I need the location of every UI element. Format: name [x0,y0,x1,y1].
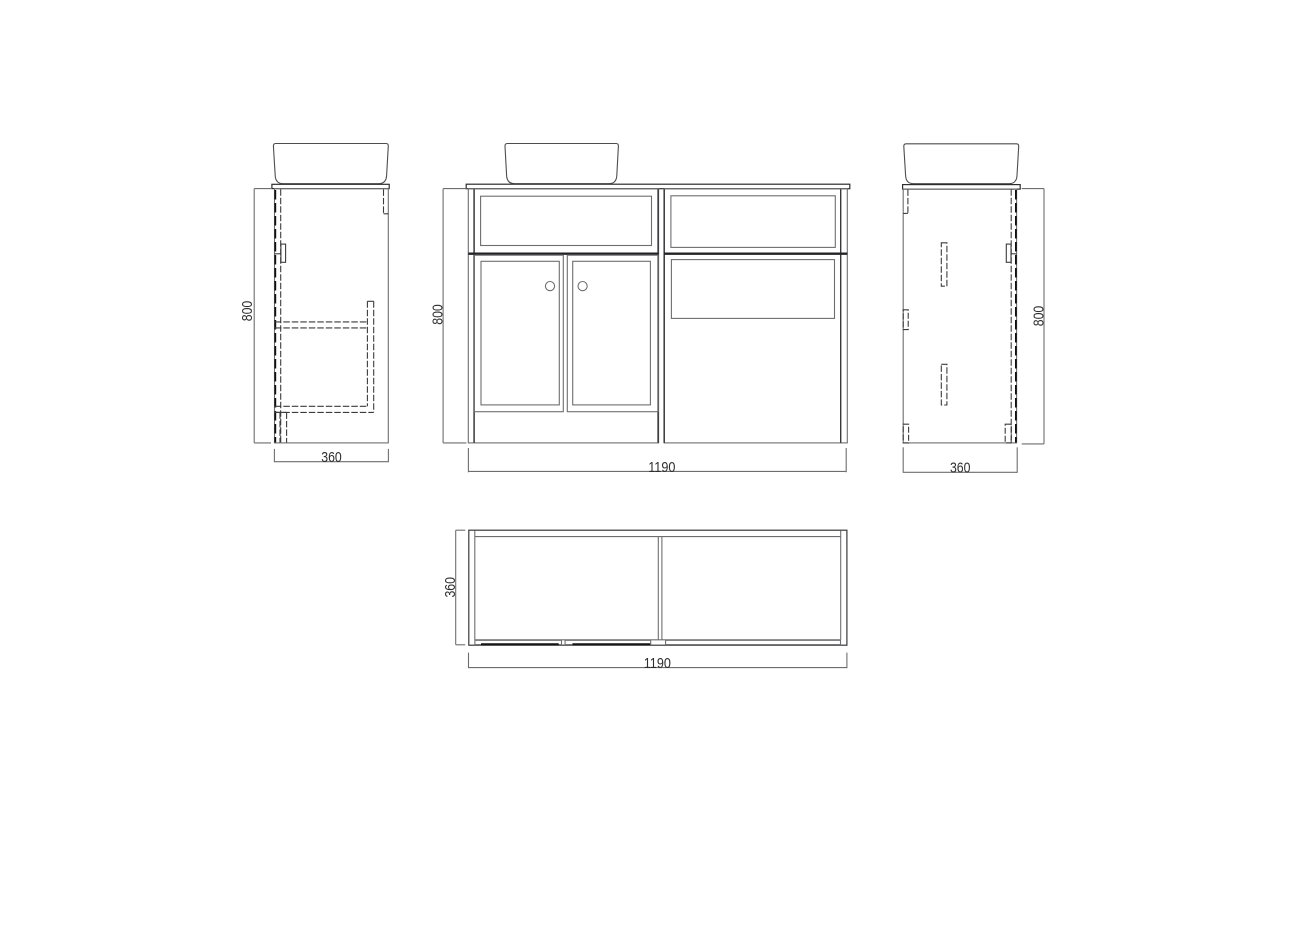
svg-text:360: 360 [442,577,459,598]
svg-text:360: 360 [321,449,342,466]
svg-text:360: 360 [950,459,971,476]
svg-text:800: 800 [1030,306,1047,327]
svg-text:1190: 1190 [648,459,675,476]
svg-text:800: 800 [430,304,447,325]
svg-text:800: 800 [239,301,256,322]
svg-text:1190: 1190 [644,655,671,672]
